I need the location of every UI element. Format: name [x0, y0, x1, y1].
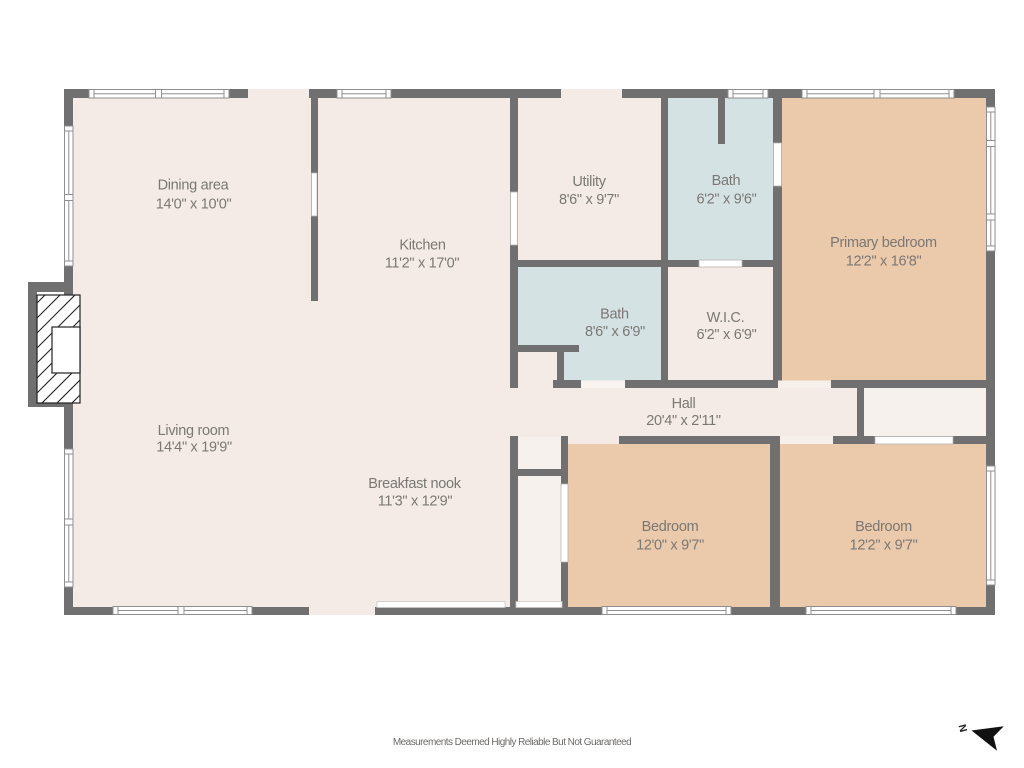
svg-text:Hall: Hall	[672, 396, 696, 412]
svg-text:20'4" x 2'11": 20'4" x 2'11"	[646, 413, 721, 429]
svg-text:Bedroom: Bedroom	[855, 519, 912, 535]
svg-text:Dining area: Dining area	[158, 178, 230, 194]
svg-text:Bath: Bath	[712, 173, 741, 189]
svg-text:12'0" x 9'7": 12'0" x 9'7"	[636, 538, 704, 554]
svg-text:14'0" x 10'0": 14'0" x 10'0"	[156, 197, 232, 213]
svg-text:12'2" x 9'7": 12'2" x 9'7"	[850, 538, 918, 554]
svg-text:Living room: Living room	[158, 423, 230, 439]
svg-text:6'2" x 9'6": 6'2" x 9'6"	[696, 192, 756, 208]
svg-text:6'2" x 6'9": 6'2" x 6'9"	[696, 327, 756, 343]
svg-text:11'3" x 12'9": 11'3" x 12'9"	[378, 494, 453, 510]
svg-text:8'6" x 6'9": 8'6" x 6'9"	[585, 324, 645, 340]
svg-text:Utility: Utility	[572, 174, 606, 190]
svg-text:Kitchen: Kitchen	[399, 238, 445, 254]
svg-text:8'6" x 9'7": 8'6" x 9'7"	[559, 192, 619, 208]
svg-text:11'2" x 17'0": 11'2" x 17'0"	[385, 256, 460, 272]
svg-text:W.I.C.: W.I.C.	[707, 310, 745, 326]
svg-text:Bath: Bath	[600, 307, 629, 323]
svg-text:Measurements Deemed Highly Rel: Measurements Deemed Highly Reliable But …	[393, 737, 631, 748]
svg-text:Bedroom: Bedroom	[642, 519, 699, 535]
svg-text:N: N	[957, 723, 971, 733]
svg-text:Breakfast nook: Breakfast nook	[368, 476, 462, 492]
svg-text:12'2" x 16'8": 12'2" x 16'8"	[846, 254, 922, 270]
svg-text:14'4" x 19'9": 14'4" x 19'9"	[156, 440, 232, 456]
svg-text:Primary bedroom: Primary bedroom	[830, 235, 937, 251]
